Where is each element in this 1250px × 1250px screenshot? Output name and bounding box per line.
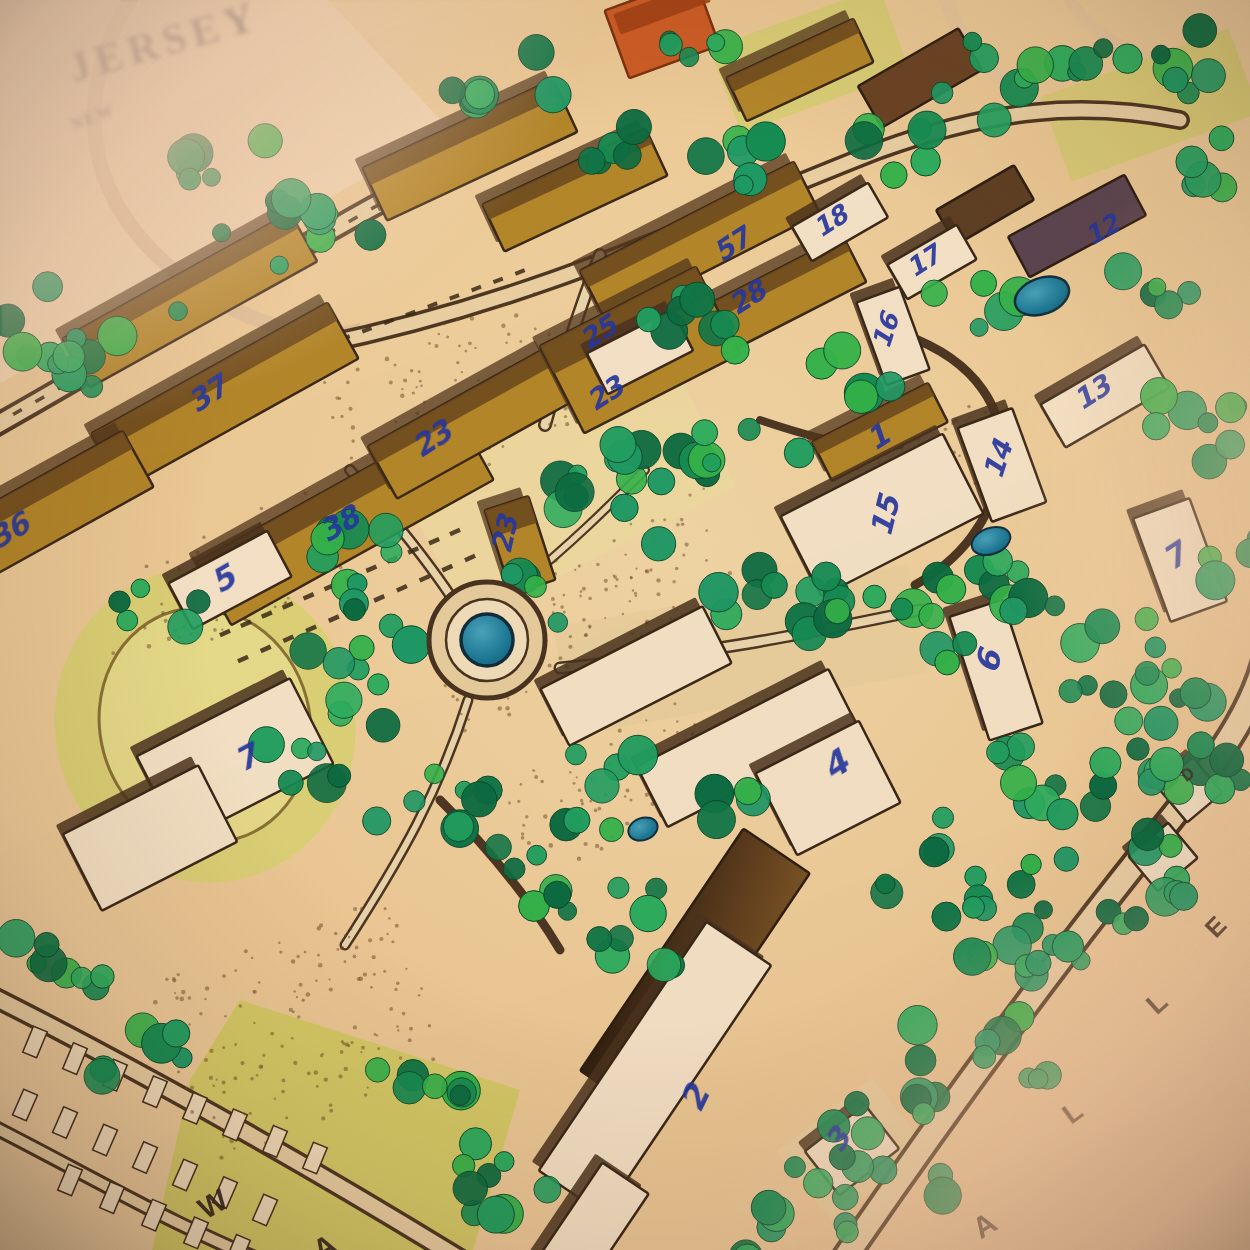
traffic-circle-fountain [429, 582, 545, 698]
campus-map-photo: 37 23 38 36 5 7 23 25 23 57 28 18 17 16 … [0, 0, 1250, 1250]
map-drawing: 37 23 38 36 5 7 23 25 23 57 28 18 17 16 … [0, 0, 1250, 1250]
